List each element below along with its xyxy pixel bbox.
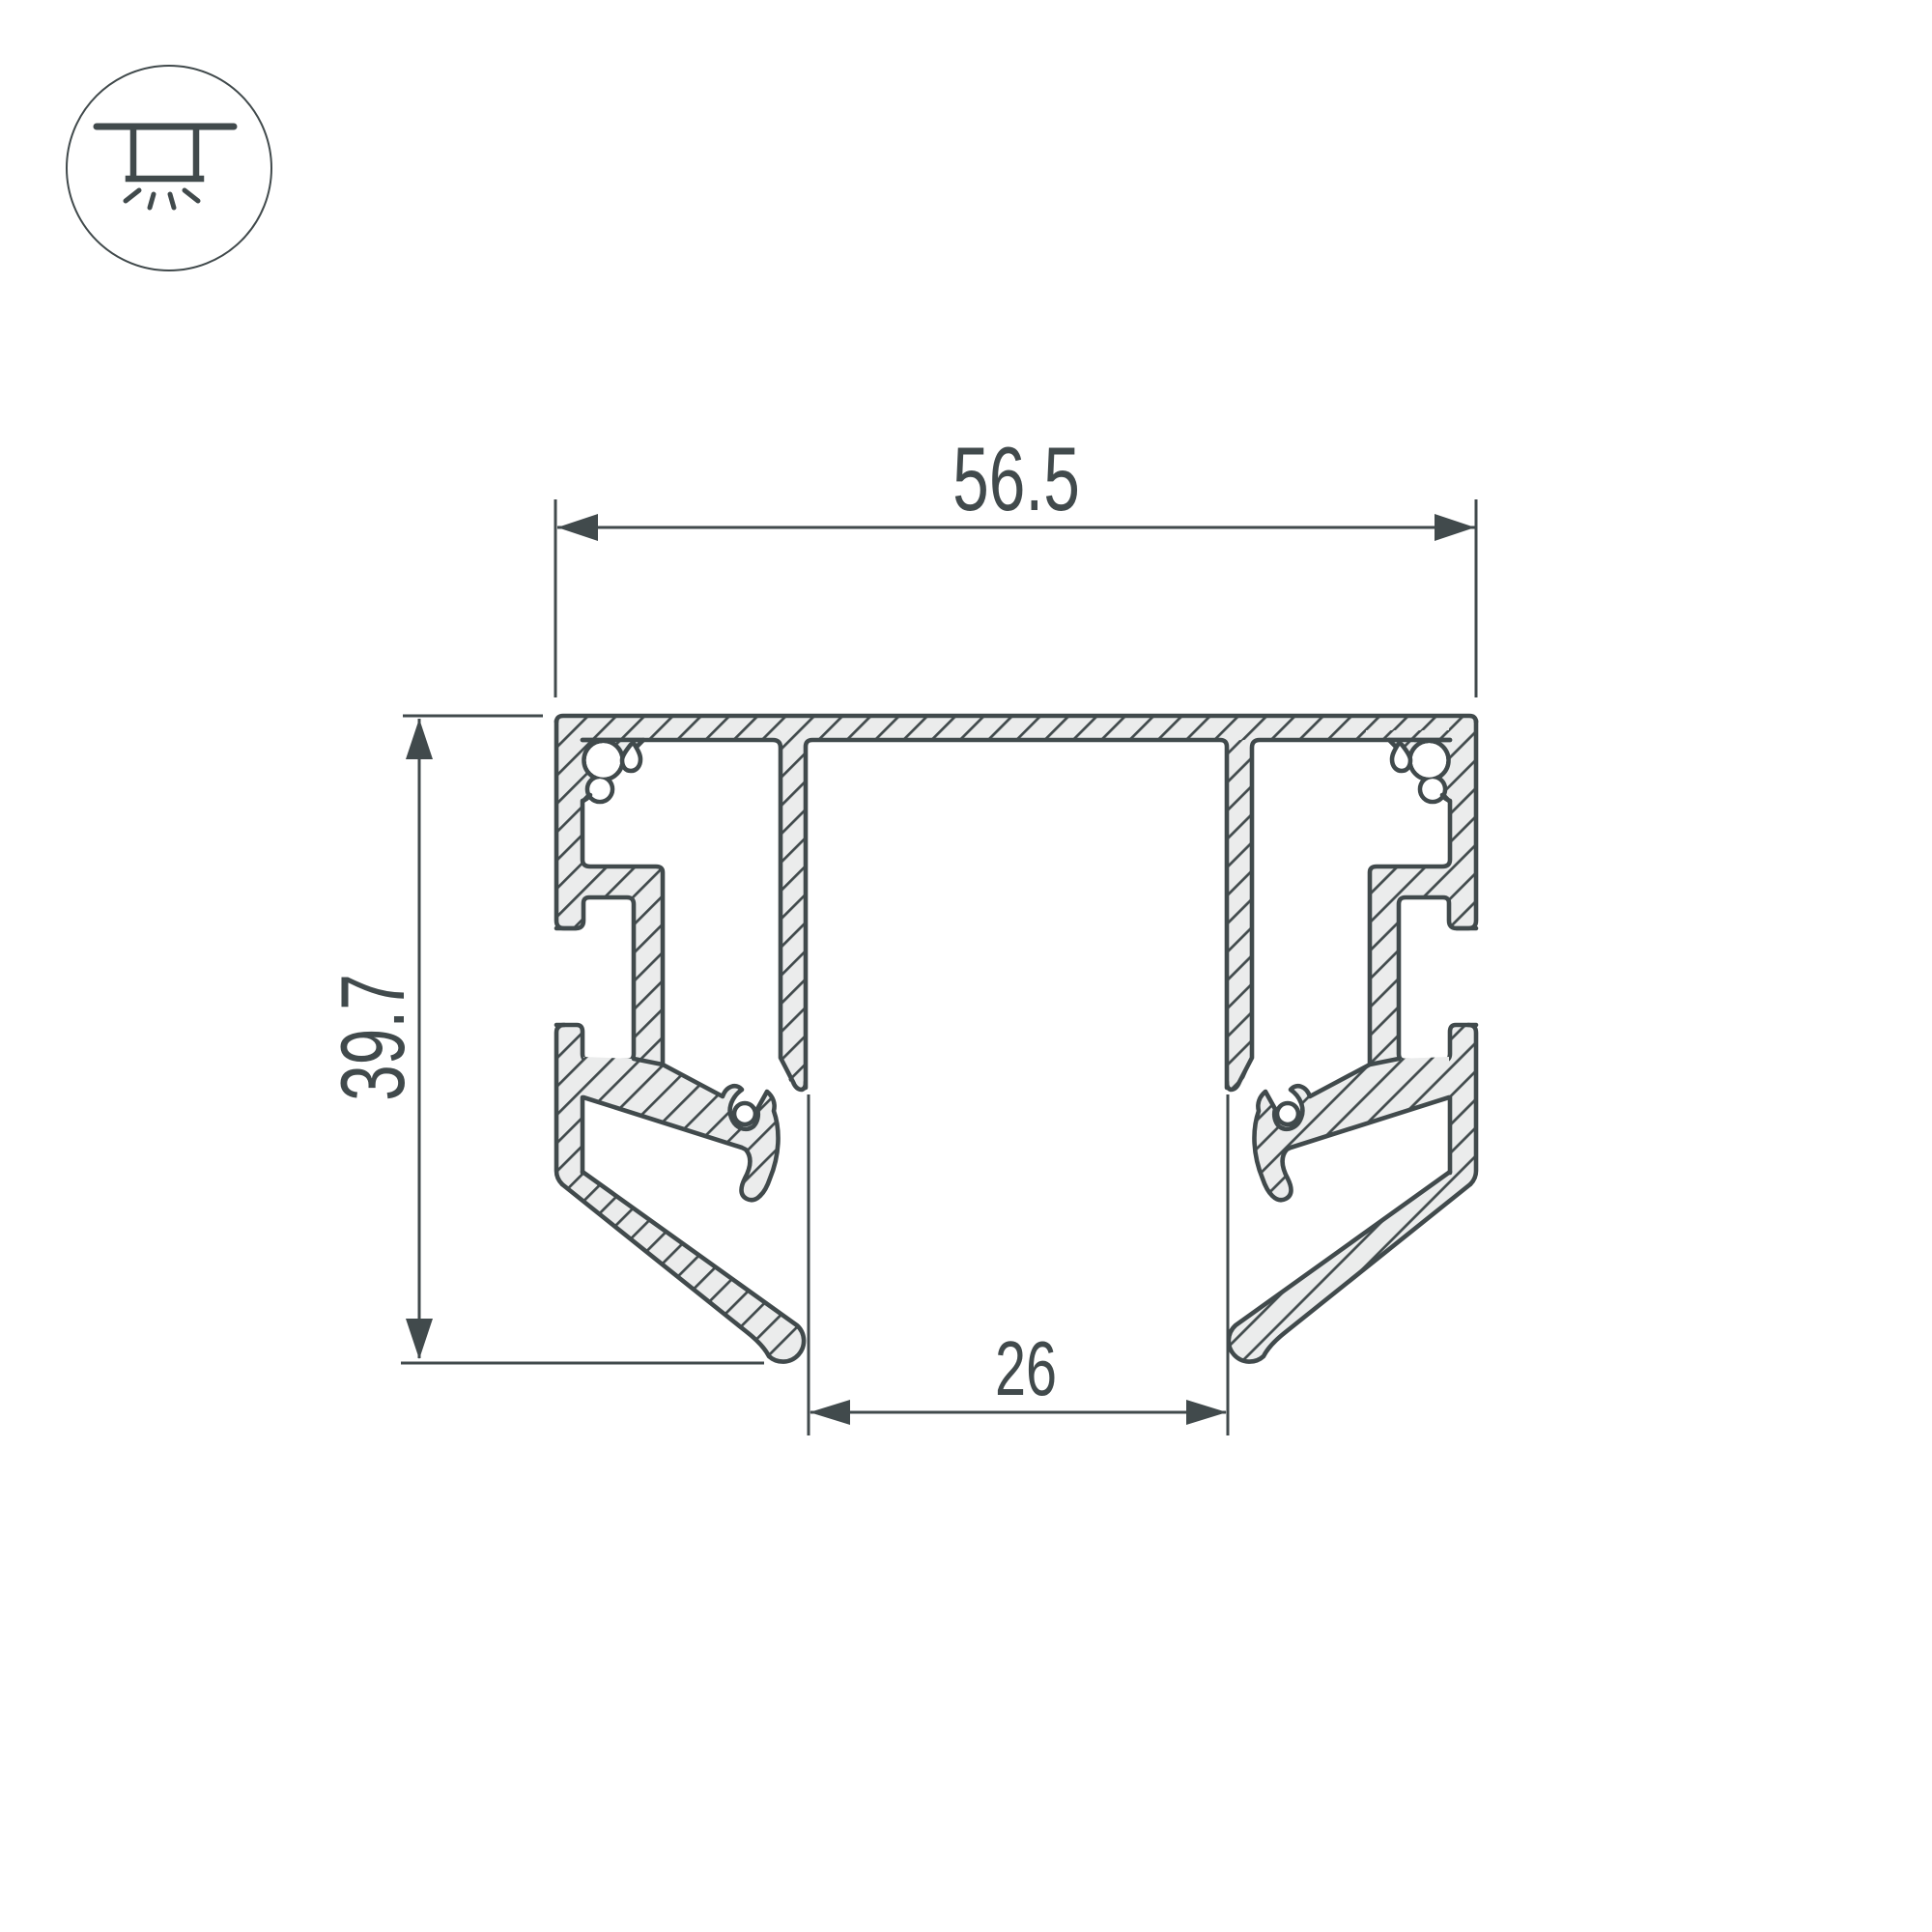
svg-text:39.7: 39.7: [323, 974, 423, 1101]
svg-text:26: 26: [995, 1325, 1057, 1412]
svg-text:56.5: 56.5: [952, 429, 1080, 529]
